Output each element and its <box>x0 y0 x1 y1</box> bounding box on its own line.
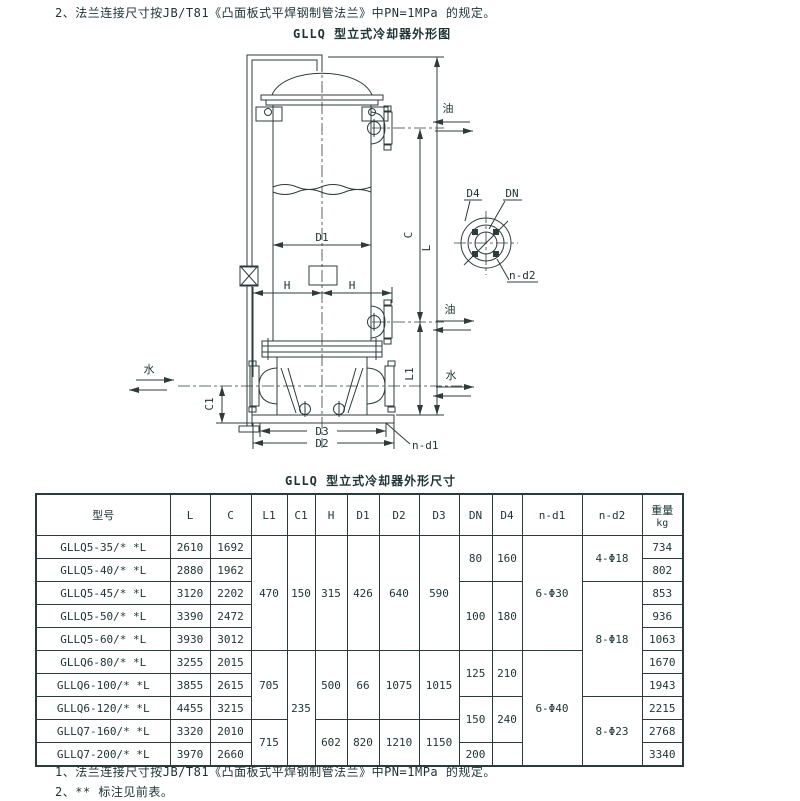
cell-C: 1692 <box>210 536 251 559</box>
nameplate <box>309 266 337 285</box>
cell-weight: 802 <box>642 559 683 582</box>
cell-L: 3320 <box>170 720 210 743</box>
cell-model: GLLQ6-100/* *L <box>36 674 170 697</box>
col-header-L1: L1 <box>251 494 287 536</box>
cell-L: 3930 <box>170 628 210 651</box>
cell-model: GLLQ5-45/* *L <box>36 582 170 605</box>
cell-L: 2880 <box>170 559 210 582</box>
oil-label: 油 <box>445 302 456 316</box>
cell-H: 315 <box>315 536 347 651</box>
cell-L: 2610 <box>170 536 210 559</box>
cell-DN: 150 <box>459 697 492 743</box>
cell-D2: 1210 <box>379 720 419 767</box>
cell-C: 2615 <box>210 674 251 697</box>
cell-D2: 640 <box>379 536 419 651</box>
cell-D1: 426 <box>347 536 379 651</box>
col-header-weight: 重量 kg <box>642 494 683 536</box>
cell-L: 3855 <box>170 674 210 697</box>
cell-C: 3012 <box>210 628 251 651</box>
cell-D1: 66 <box>347 651 379 720</box>
col-header-D1: D1 <box>347 494 379 536</box>
cell-D4: 180 <box>492 582 522 651</box>
cell-D4: 240 <box>492 697 522 743</box>
table-title: GLLQ 型立式冷却器外形尺寸 <box>285 472 456 489</box>
cell-model: GLLQ5-40/* *L <box>36 559 170 582</box>
note-flange-standard-bottom: 1、法兰连接尺寸按JB/T81《凸面板式平焊钢制管法兰》中PN=1MPa 的规定… <box>55 763 496 780</box>
water-nozzle-right <box>367 361 395 412</box>
cell-model: GLLQ6-120/* *L <box>36 697 170 720</box>
col-header-D3: D3 <box>419 494 459 536</box>
col-header-DN: DN <box>459 494 492 536</box>
cell-DN: 125 <box>459 651 492 697</box>
base-plate <box>252 415 394 423</box>
cell-D2: 1075 <box>379 651 419 720</box>
cell-C: 2202 <box>210 582 251 605</box>
drawing-title: GLLQ 型立式冷却器外形图 <box>293 25 451 42</box>
cell-n-d1: 6-Φ40 <box>522 651 582 767</box>
cell-L: 3390 <box>170 605 210 628</box>
weight-unit-label: kg <box>644 518 682 529</box>
col-header-n-d2: n-d2 <box>582 494 642 536</box>
cell-weight: 2215 <box>642 697 683 720</box>
dimensions-table-wrap: 型号 L C L1 C1 H D1 D2 D3 DN D4 n-d1 n-d2 … <box>35 493 684 767</box>
cell-C: 2472 <box>210 605 251 628</box>
col-header-D4: D4 <box>492 494 522 536</box>
note-marking-reference: 2、** 标注见前表。 <box>55 783 173 800</box>
col-header-n-d1: n-d1 <box>522 494 582 536</box>
col-header-L: L <box>170 494 210 536</box>
cell-n-d2: 8-Φ18 <box>582 582 642 697</box>
dim-label-D4: D4 <box>466 187 480 200</box>
cell-n-d2: 8-Φ23 <box>582 697 642 767</box>
vent-pipe <box>239 55 322 432</box>
cell-D4: 160 <box>492 536 522 582</box>
cell-D1: 820 <box>347 720 379 767</box>
dim-label-C1: C1 <box>203 397 216 410</box>
cell-model: GLLQ6-80/* *L <box>36 651 170 674</box>
table-row: GLLQ5-35/* *L 2610 1692 470 150 315 426 … <box>36 536 683 559</box>
cell-L1: 470 <box>251 536 287 651</box>
dim-label-H: H <box>349 279 356 292</box>
dim-label-DN: DN <box>505 187 518 200</box>
cell-C: 2015 <box>210 651 251 674</box>
cell-D3: 590 <box>419 536 459 651</box>
vessel-body <box>252 73 394 423</box>
cell-DN: 80 <box>459 536 492 582</box>
col-header-C1: C1 <box>287 494 315 536</box>
col-header-H: H <box>315 494 347 536</box>
cell-H: 602 <box>315 720 347 767</box>
cell-weight: 1943 <box>642 674 683 697</box>
dim-label-n-d1: n-d1 <box>412 439 439 452</box>
cell-weight: 853 <box>642 582 683 605</box>
cooler-outline-drawing: 油 油 水 水 H H D1 C L L1 C1 D3 D2 n-d1 D4 D… <box>0 0 800 492</box>
cell-C: 2010 <box>210 720 251 743</box>
cell-model: GLLQ5-50/* *L <box>36 605 170 628</box>
cell-L: 3120 <box>170 582 210 605</box>
cell-weight: 734 <box>642 536 683 559</box>
cell-D4: 210 <box>492 651 522 697</box>
cell-L1: 715 <box>251 720 287 767</box>
cell-weight: 1063 <box>642 628 683 651</box>
cell-weight: 936 <box>642 605 683 628</box>
flow-arrows <box>129 122 474 396</box>
cell-model: GLLQ5-35/* *L <box>36 536 170 559</box>
cell-C: 1962 <box>210 559 251 582</box>
cell-L: 4455 <box>170 697 210 720</box>
dim-label-L1: L1 <box>403 367 416 380</box>
cell-weight: 2768 <box>642 720 683 743</box>
cell-L1: 705 <box>251 651 287 720</box>
water-label: 水 <box>144 363 155 376</box>
dimensions-table: 型号 L C L1 C1 H D1 D2 D3 DN D4 n-d1 n-d2 … <box>35 493 684 767</box>
col-header-D2: D2 <box>379 494 419 536</box>
dim-label-H: H <box>284 279 291 292</box>
col-header-C: C <box>210 494 251 536</box>
dim-label-C: C <box>402 232 415 239</box>
cell-model: GLLQ5-60/* *L <box>36 628 170 651</box>
oil-label: 油 <box>443 101 454 115</box>
catalog-page: { "page": { "note_top": "2、法兰连接尺寸按JB/T81… <box>0 0 800 801</box>
col-header-model: 型号 <box>36 494 170 536</box>
cell-C: 3215 <box>210 697 251 720</box>
dim-label-D2: D2 <box>315 437 328 450</box>
weight-label: 重量 <box>644 502 682 518</box>
cell-C1: 235 <box>287 651 315 767</box>
cell-D3: 1015 <box>419 651 459 720</box>
cell-D3: 1150 <box>419 720 459 767</box>
cell-weight: 3340 <box>642 743 683 767</box>
dim-label-D1: D1 <box>315 231 328 244</box>
header-row: 型号 L C L1 C1 H D1 D2 D3 DN D4 n-d1 n-d2 … <box>36 494 683 536</box>
cell-n-d1: 6-Φ30 <box>522 536 582 651</box>
cell-model: GLLQ7-160/* *L <box>36 720 170 743</box>
cell-DN: 100 <box>459 582 492 651</box>
dim-label-L: L <box>420 244 433 251</box>
dim-label-n-d2: n-d2 <box>509 269 536 282</box>
cell-weight: 1670 <box>642 651 683 674</box>
water-label: 水 <box>446 369 457 382</box>
cell-D4 <box>492 743 522 767</box>
cell-C1: 150 <box>287 536 315 651</box>
cell-n-d2: 4-Φ18 <box>582 536 642 582</box>
cell-H: 500 <box>315 651 347 720</box>
cell-L: 3255 <box>170 651 210 674</box>
